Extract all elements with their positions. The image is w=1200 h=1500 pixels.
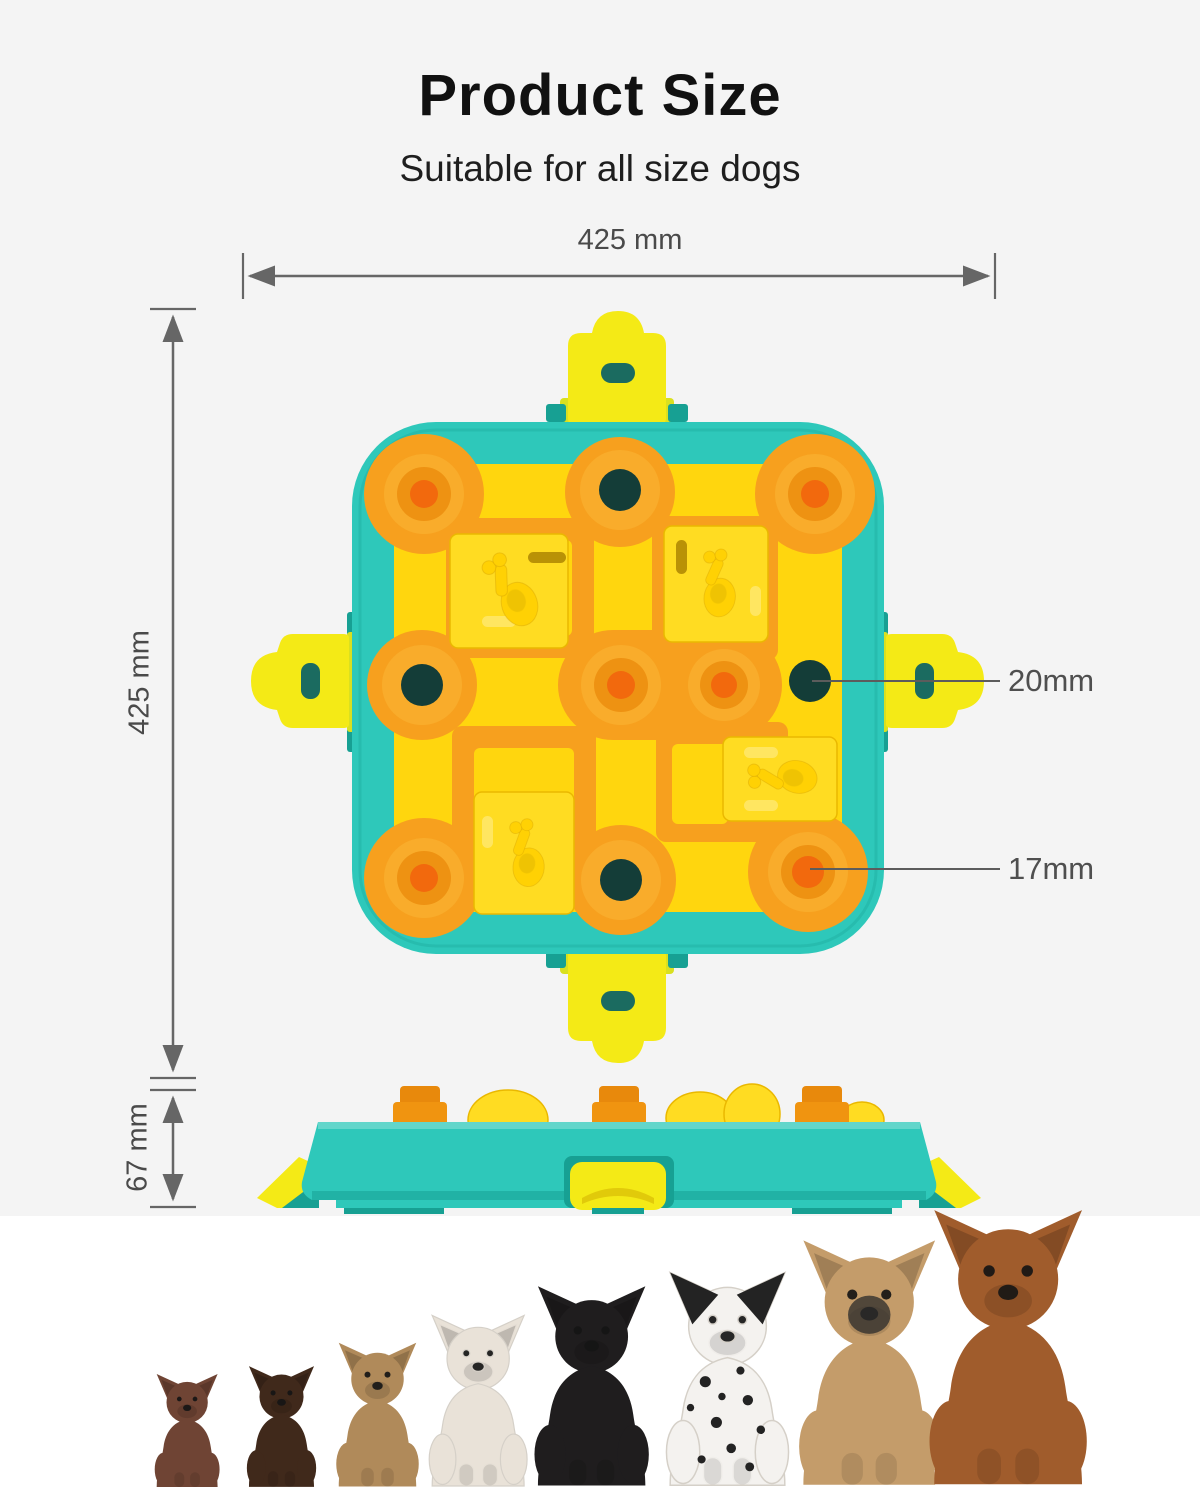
treat-well	[581, 645, 661, 725]
left-clip	[251, 612, 365, 752]
page-title: Product Size	[0, 62, 1200, 129]
knob	[393, 1086, 447, 1126]
bottom-clip	[546, 948, 688, 1063]
treat-well-hole	[580, 450, 660, 530]
dimension-depth-arrow	[150, 1090, 196, 1207]
puzzle-side-view	[257, 1084, 981, 1214]
knob	[795, 1086, 849, 1126]
treat-well-hole	[581, 840, 661, 920]
slider-block[interactable]	[664, 526, 768, 642]
callout-label-17mm: 17mm	[1008, 851, 1094, 887]
slider-block[interactable]	[474, 792, 574, 914]
treat-well	[384, 838, 464, 918]
product-size-infographic: Product Size Suitable for all size dogs …	[0, 0, 1200, 1500]
page-subtitle: Suitable for all size dogs	[0, 148, 1200, 190]
dimension-height-arrow	[150, 309, 196, 1078]
dimension-height-label: 425 mm	[124, 601, 157, 765]
treat-well	[384, 454, 464, 534]
knob	[592, 1086, 646, 1126]
dimension-width-label: 425 mm	[530, 224, 730, 257]
treat-well	[688, 649, 760, 721]
dimension-depth-label: 67 mm	[122, 1066, 155, 1230]
slider-block[interactable]	[723, 737, 837, 821]
treat-well-17mm	[768, 832, 848, 912]
dimension-width-arrow	[243, 253, 995, 299]
treat-well-hole	[382, 645, 462, 725]
puzzle-top-view	[251, 311, 984, 1063]
top-clip	[546, 311, 688, 424]
treat-well	[775, 454, 855, 534]
slider-block[interactable]	[450, 534, 568, 648]
callout-label-20mm: 20mm	[1008, 663, 1094, 699]
